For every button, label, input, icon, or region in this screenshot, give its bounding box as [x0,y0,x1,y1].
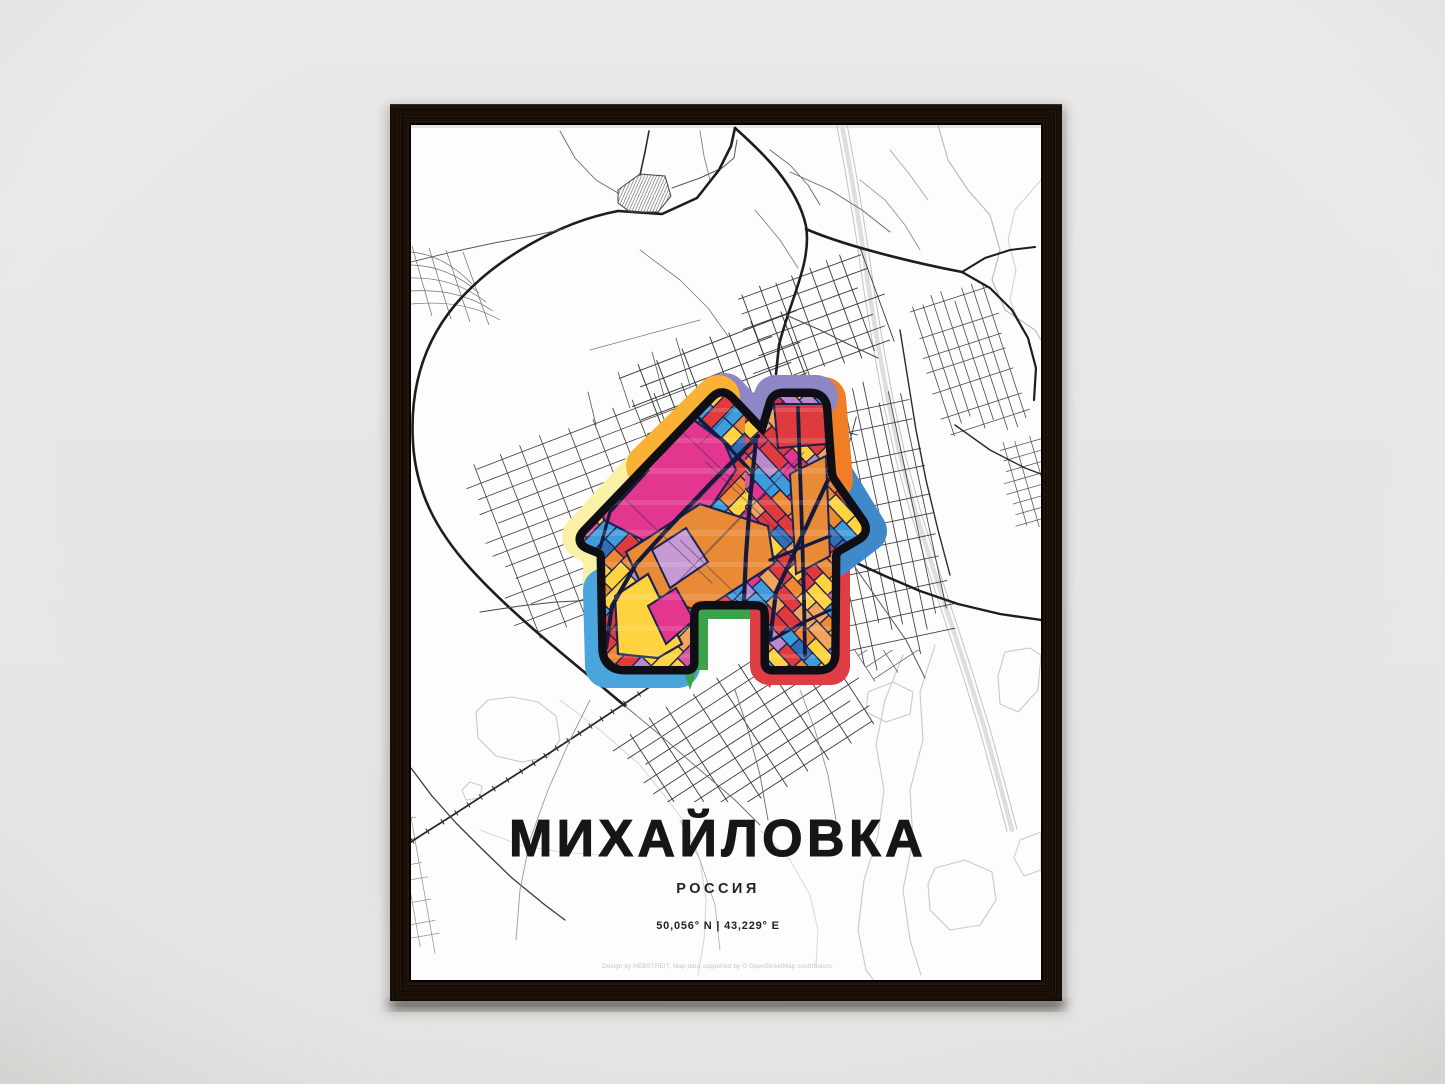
svg-text:МИХАЙЛОВКА: МИХАЙЛОВКА [509,809,927,868]
svg-text:50,056° N | 43,229° E: 50,056° N | 43,229° E [656,920,779,932]
svg-text:РОССИЯ: РОССИЯ [676,881,760,897]
svg-text:Design by HEBSTREIT, Map data: Design by HEBSTREIT, Map data supported … [602,963,834,970]
